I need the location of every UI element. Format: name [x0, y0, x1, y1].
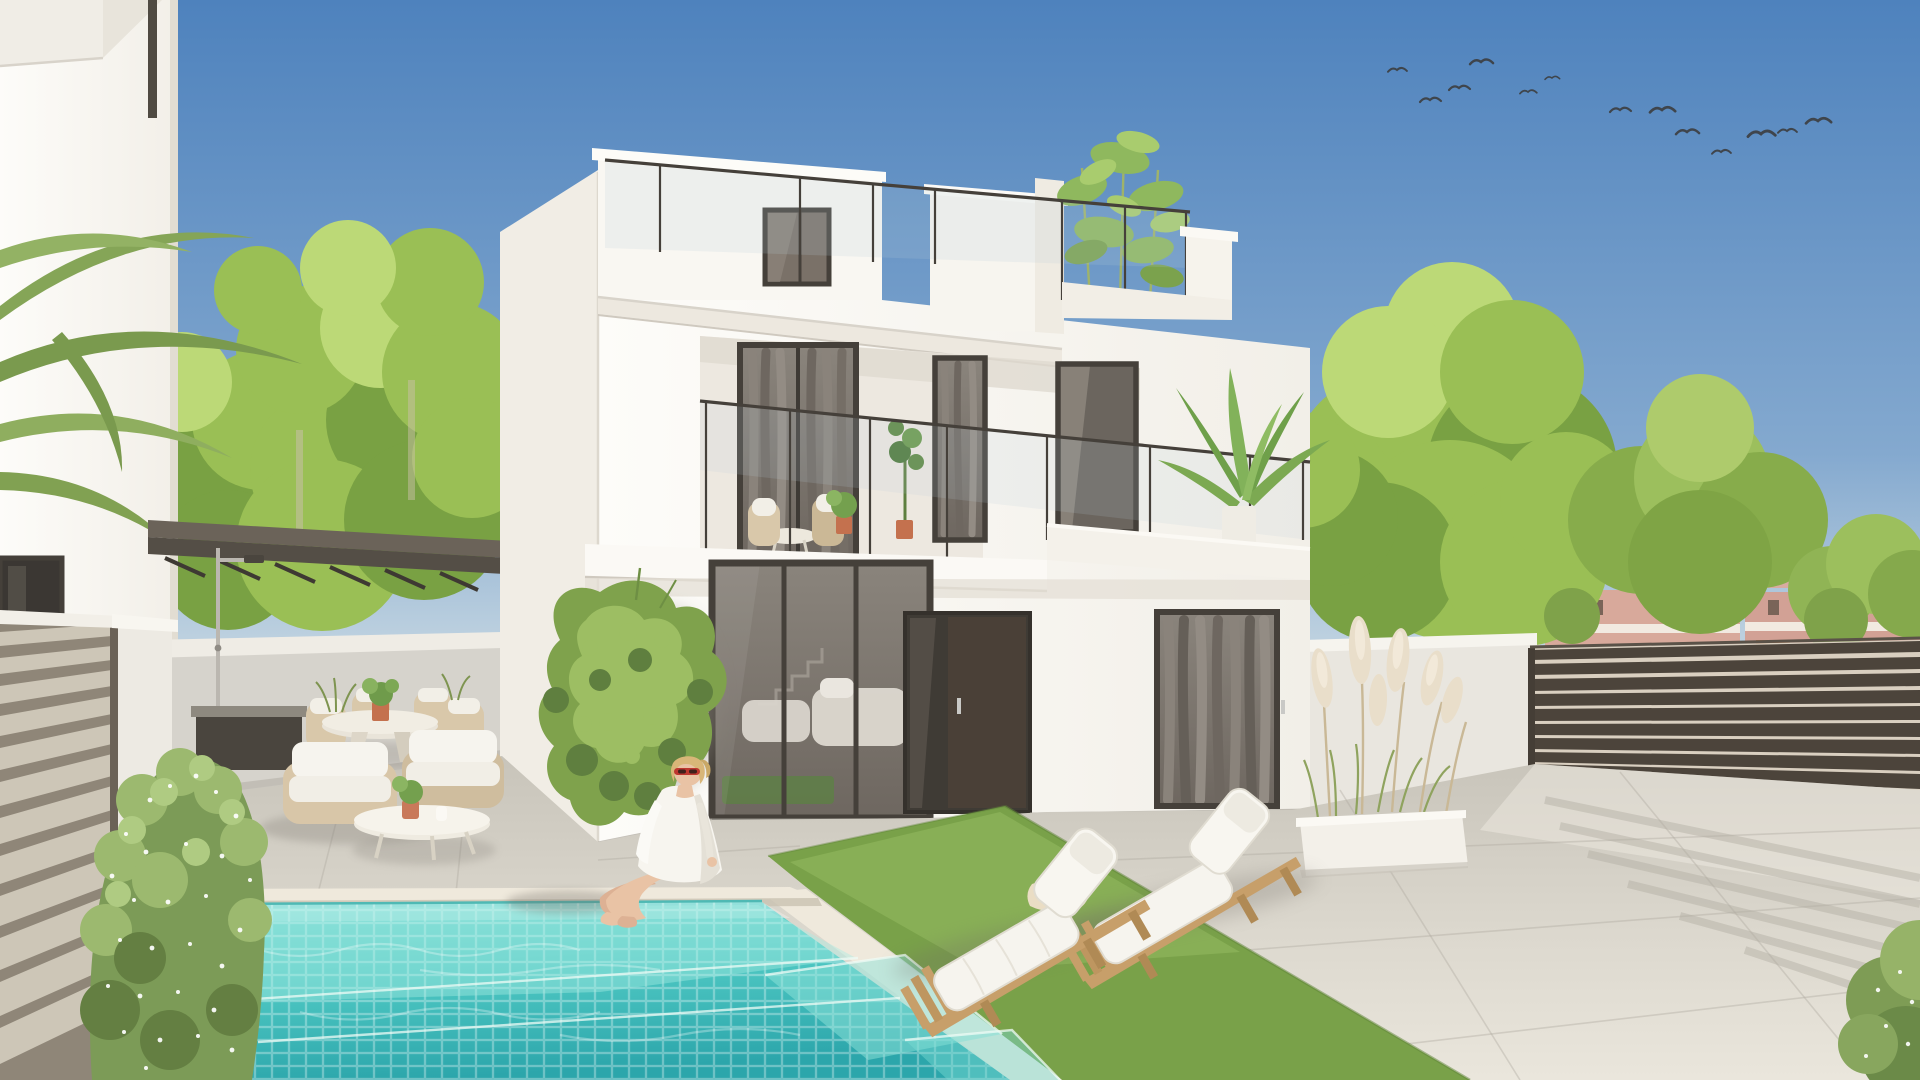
main-villa [500, 127, 1330, 844]
slot-window [148, 0, 157, 118]
neighbor-villa [0, 0, 178, 660]
villa-scene [0, 0, 1920, 1080]
entry-door [905, 613, 1030, 812]
sliding-glass-doors [706, 563, 936, 820]
door-handle [957, 698, 961, 714]
wing-glass-door [1157, 612, 1285, 806]
render-canvas [0, 0, 1920, 1080]
